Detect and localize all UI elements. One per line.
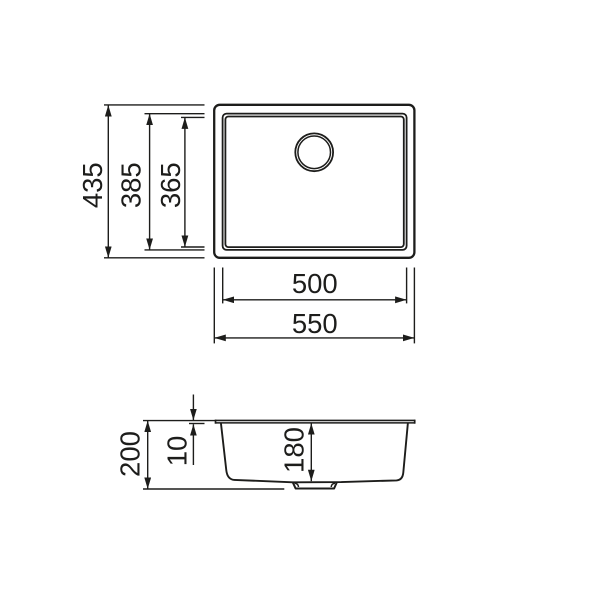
svg-text:435: 435 [77, 162, 108, 208]
svg-text:500: 500 [292, 268, 338, 299]
svg-text:365: 365 [155, 162, 186, 208]
svg-text:10: 10 [161, 436, 192, 467]
svg-text:385: 385 [116, 162, 147, 208]
svg-text:550: 550 [292, 308, 338, 339]
svg-text:180: 180 [279, 427, 310, 473]
svg-text:200: 200 [114, 431, 145, 477]
